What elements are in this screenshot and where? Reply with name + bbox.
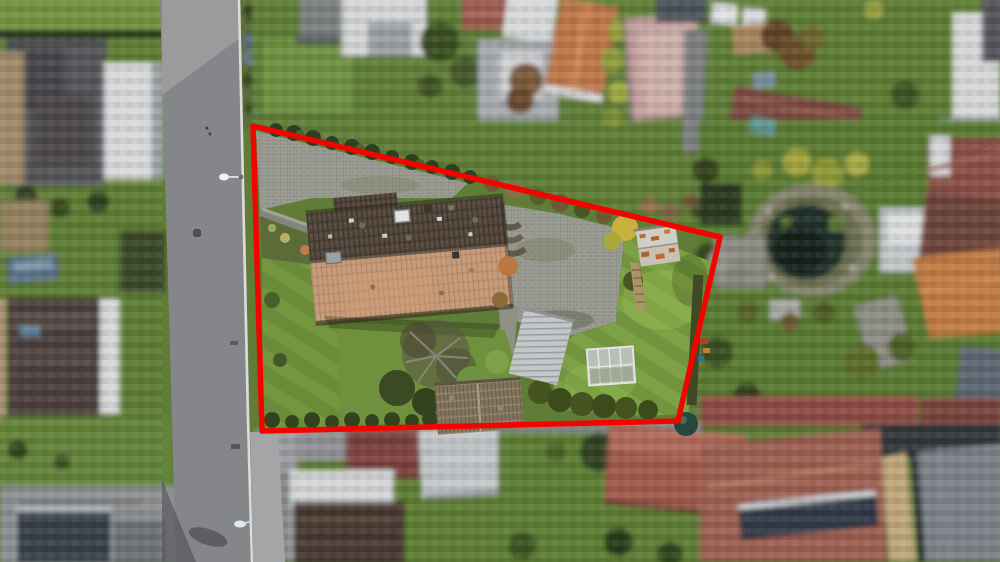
autumn-shrub	[498, 256, 518, 276]
aerial-photo	[0, 0, 1000, 562]
greenhouse	[587, 346, 635, 385]
garden-shed	[634, 223, 683, 267]
aerial-photo-canvas	[0, 0, 1000, 562]
bush	[379, 370, 415, 406]
main-house	[305, 183, 514, 326]
skylight	[394, 209, 410, 222]
chimney	[326, 252, 342, 264]
